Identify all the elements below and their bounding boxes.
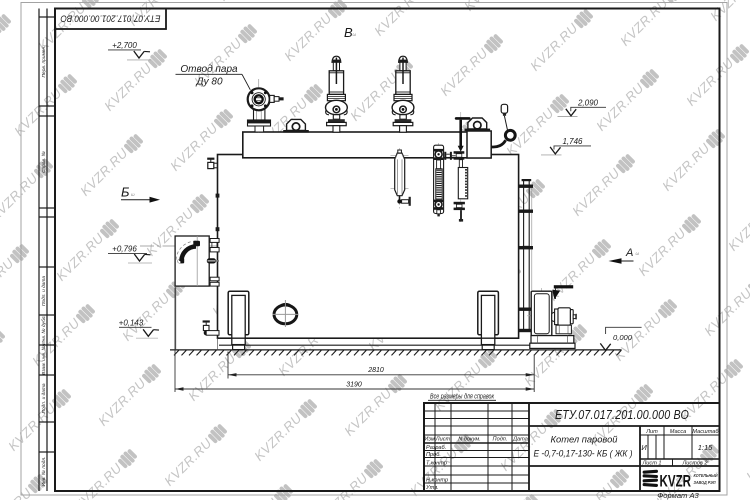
svg-text:Подп.: Подп.	[493, 437, 508, 443]
svg-text:Подп. и дата: Подп. и дата	[41, 276, 47, 306]
svg-text:Н.контр: Н.контр	[426, 478, 448, 484]
svg-text:Подп. и дата: Подп. и дата	[41, 383, 47, 413]
svg-text:Инв. № подл.: Инв. № подл.	[41, 457, 47, 487]
svg-text:Формат А3: Формат А3	[657, 491, 699, 500]
svg-text:1:15: 1:15	[698, 443, 713, 452]
svg-text:КОТЕЛЬНЫЙ: КОТЕЛЬНЫЙ	[694, 471, 719, 478]
svg-text:Масса: Масса	[670, 429, 687, 435]
svg-text:Инв. № дубл.: Инв. № дубл.	[41, 315, 47, 345]
svg-text:Лист 1: Лист 1	[641, 461, 661, 467]
svg-text:Проб.: Проб.	[426, 452, 441, 458]
svg-text:N докум.: N докум.	[458, 437, 481, 443]
svg-text:+0,143: +0,143	[119, 318, 144, 327]
svg-text:0,000: 0,000	[613, 333, 633, 342]
svg-text:2810: 2810	[367, 367, 384, 374]
svg-text:Изм: Изм	[424, 437, 435, 443]
svg-text:Все размеры для справок: Все размеры для справок	[430, 391, 494, 400]
svg-text:+2,700: +2,700	[112, 41, 137, 50]
svg-text:Разраб.: Разраб.	[426, 445, 446, 451]
svg-text:ЕТУ.07.017.201.00.000 ВО: ЕТУ.07.017.201.00.000 ВО	[61, 13, 161, 23]
svg-text:3190: 3190	[346, 381, 362, 388]
svg-text:1,746: 1,746	[562, 137, 583, 146]
svg-text:ω: ω	[636, 251, 640, 256]
svg-text:Перв. примен.: Перв. примен.	[41, 46, 47, 78]
svg-text:ω: ω	[131, 192, 135, 197]
svg-text:ЕТУ.07.017.201.00.000 ВО: ЕТУ.07.017.201.00.000 ВО	[555, 408, 689, 422]
svg-text:Утв.: Утв.	[425, 485, 439, 491]
svg-text:Масштаб: Масштаб	[692, 429, 719, 435]
svg-text:KVZR: KVZR	[660, 472, 692, 491]
svg-text:Дата: Дата	[512, 437, 528, 443]
svg-text:А: А	[625, 247, 633, 259]
svg-text:Лит: Лит	[645, 429, 658, 435]
svg-text:Взам. инв. №: Взам. инв. №	[41, 345, 47, 375]
svg-text:Котел паровой: Котел паровой	[551, 434, 618, 444]
svg-text:Лист: Лист	[435, 437, 451, 443]
svg-text:ЗАВОД РЭП: ЗАВОД РЭП	[694, 480, 717, 485]
svg-text:И: И	[641, 443, 647, 452]
svg-text:Листов 2: Листов 2	[681, 461, 708, 467]
svg-text:Т.контр: Т.контр	[426, 461, 447, 467]
svg-text:+0,796: +0,796	[112, 244, 137, 253]
svg-text:Справ. №: Справ. №	[41, 151, 47, 173]
svg-text:ω: ω	[353, 32, 357, 37]
svg-text:Б: Б	[121, 185, 130, 200]
svg-text:Ду 80: Ду 80	[195, 77, 222, 88]
svg-text:2,090: 2,090	[577, 98, 599, 107]
svg-text:Е -0,7-0,17-130- КБ ( ЖК ): Е -0,7-0,17-130- КБ ( ЖК )	[534, 449, 633, 459]
svg-text:Отвод пара: Отвод пара	[180, 64, 238, 75]
